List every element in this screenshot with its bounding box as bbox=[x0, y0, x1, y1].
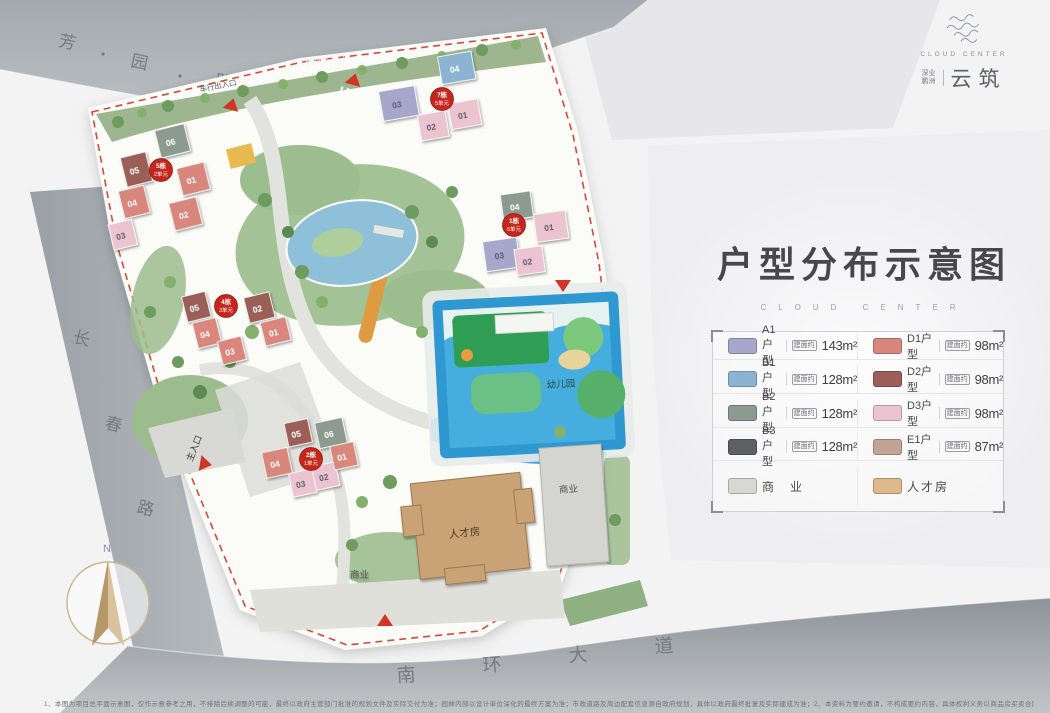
legend-swatch bbox=[728, 439, 757, 455]
poster-stage: 芳 园 路 长 春 路 南 环 大 道 bbox=[0, 0, 1050, 713]
legend-item-a1: A1户型 建面约 143m² bbox=[713, 332, 858, 360]
legend-swatch bbox=[728, 371, 757, 387]
legend-area-value: 98m² bbox=[975, 372, 1003, 387]
legend-separator bbox=[939, 373, 940, 385]
compass-north-label: N bbox=[103, 543, 111, 555]
legend-corner-mark bbox=[993, 501, 1005, 513]
svg-text:4栋: 4栋 bbox=[221, 297, 232, 306]
legend-swatch bbox=[873, 371, 902, 387]
legend-item-talent-house: 人才房 bbox=[858, 467, 1003, 505]
legend-area-prefix: 建面约 bbox=[792, 408, 817, 419]
legend-type-label: D3户型 bbox=[907, 397, 934, 429]
kindergarten-label: 幼儿园 bbox=[546, 378, 575, 391]
legend-separator bbox=[939, 407, 940, 419]
legend-area-prefix: 建面约 bbox=[792, 441, 817, 452]
commerce-label-b: 商业 bbox=[350, 569, 369, 581]
road-label-char: 南 bbox=[396, 664, 416, 687]
commerce-label-a: 商业 bbox=[558, 483, 578, 496]
building-number: 03 bbox=[494, 250, 505, 261]
legend-area-prefix: 建面约 bbox=[792, 374, 817, 385]
road-label-char: 道 bbox=[654, 635, 675, 658]
unit-badge: 4栋 3单元 bbox=[215, 295, 238, 318]
legend-area-value: 143m² bbox=[822, 338, 857, 353]
logo-brand-small-top: 深业 bbox=[922, 70, 936, 78]
legend-swatch bbox=[728, 338, 757, 354]
project-logo: CLOUD CENTER 深业 鹏洲 云筑 bbox=[894, 8, 1034, 93]
legend-area-value: 87m² bbox=[975, 439, 1003, 454]
building-number: 01 bbox=[457, 110, 468, 122]
legend-separator bbox=[786, 407, 787, 419]
legend-area-prefix: 建面约 bbox=[792, 340, 817, 351]
unit-badge: 2栋 1单元 bbox=[300, 448, 323, 471]
legend-separator bbox=[939, 340, 940, 352]
road-label-char: 环 bbox=[482, 655, 502, 677]
logo-en-text: CLOUD CENTER bbox=[894, 51, 1034, 58]
legend-area-prefix: 建面约 bbox=[945, 408, 970, 419]
legend-item-e1: E1户型 建面约 87m² bbox=[858, 433, 1003, 461]
logo-brand-small: 深业 鹏洲 bbox=[922, 70, 944, 86]
title-block: 户型分布示意图 CLOUD CENTER bbox=[688, 236, 1040, 312]
legend-type-label: E1户型 bbox=[907, 431, 934, 463]
legend-separator bbox=[939, 441, 940, 453]
cloud-logo-icon bbox=[941, 8, 987, 48]
legend-item-b3: B3户型 建面约 128m² bbox=[713, 433, 858, 461]
legend-area-prefix: 建面约 bbox=[945, 340, 970, 351]
legend-panel: A1户型 建面约 143m² D1户型 建面约 98m² B1户型 建面约 12… bbox=[712, 331, 1004, 512]
unit-badge: 5栋 2单元 bbox=[150, 159, 173, 182]
disclaimer-text: 1、本图为项目总平面示意图，仅作示意参考之用，不排除后续调整的可能，最终以政府主… bbox=[44, 698, 1034, 708]
building-number: 04 bbox=[449, 63, 460, 75]
legend-area-prefix: 建面约 bbox=[945, 441, 970, 452]
legend-item-d3: D3户型 建面约 98m² bbox=[858, 400, 1003, 428]
legend-item-b2: B2户型 建面约 128m² bbox=[713, 400, 858, 428]
legend-type-label: B3户型 bbox=[762, 425, 781, 469]
svg-text:5单元: 5单元 bbox=[435, 99, 450, 107]
legend-swatch bbox=[873, 405, 902, 421]
legend-swatch bbox=[728, 405, 757, 421]
unit-badge: 7栋 5单元 bbox=[431, 88, 454, 111]
legend-item-d1: D1户型 建面约 98m² bbox=[858, 332, 1003, 360]
legend-swatch bbox=[728, 478, 757, 494]
svg-text:2栋: 2栋 bbox=[306, 450, 317, 459]
legend-separator bbox=[786, 373, 787, 385]
legend-area-value: 128m² bbox=[822, 372, 857, 387]
logo-brand-main: 云筑 bbox=[951, 63, 1007, 93]
page-title: 户型分布示意图 bbox=[688, 236, 1040, 288]
svg-text:7栋: 7栋 bbox=[437, 90, 448, 99]
page-subtitle: CLOUD CENTER bbox=[688, 303, 1040, 312]
svg-text:2单元: 2单元 bbox=[154, 170, 169, 178]
legend-area-value: 128m² bbox=[822, 406, 857, 421]
legend-corner-mark bbox=[711, 501, 723, 513]
legend-area-value: 128m² bbox=[822, 439, 857, 454]
legend-extra-label: 人才房 bbox=[907, 478, 949, 495]
building-number: 04 bbox=[509, 202, 520, 213]
logo-brand-small-bottom: 鹏洲 bbox=[922, 78, 936, 86]
building-number: 02 bbox=[522, 256, 533, 267]
legend-item-d2: D2户型 建面约 98m² bbox=[858, 366, 1003, 394]
legend-separator bbox=[786, 340, 787, 352]
legend-item-commerce: 商 业 bbox=[713, 467, 858, 505]
svg-text:5栋: 5栋 bbox=[156, 161, 167, 170]
legend-separator bbox=[786, 441, 787, 453]
building-number: 01 bbox=[544, 222, 555, 233]
legend-swatch bbox=[873, 478, 902, 494]
road-label-char: 大 bbox=[568, 644, 589, 667]
kindergarten-block: 幼儿园 bbox=[422, 281, 636, 467]
svg-text:6单元: 6单元 bbox=[507, 225, 522, 233]
legend-corner-mark bbox=[711, 330, 723, 342]
unit-badge: 1栋 6单元 bbox=[503, 214, 526, 237]
legend-corner-mark bbox=[993, 330, 1005, 342]
legend-type-label: D1户型 bbox=[907, 330, 934, 362]
svg-text:1栋: 1栋 bbox=[509, 216, 520, 225]
building-number: 03 bbox=[391, 99, 402, 111]
legend-swatch bbox=[873, 439, 902, 455]
legend-area-value: 98m² bbox=[975, 406, 1003, 421]
legend-item-b1: B1户型 建面约 128m² bbox=[713, 366, 858, 394]
legend-type-label: D2户型 bbox=[907, 363, 934, 395]
legend-extra-label: 商 业 bbox=[762, 478, 804, 495]
legend-swatch bbox=[873, 338, 902, 354]
legend-area-prefix: 建面约 bbox=[945, 374, 970, 385]
building-number: 02 bbox=[426, 121, 437, 133]
svg-text:3单元: 3单元 bbox=[219, 306, 234, 314]
svg-text:1单元: 1单元 bbox=[304, 459, 319, 467]
